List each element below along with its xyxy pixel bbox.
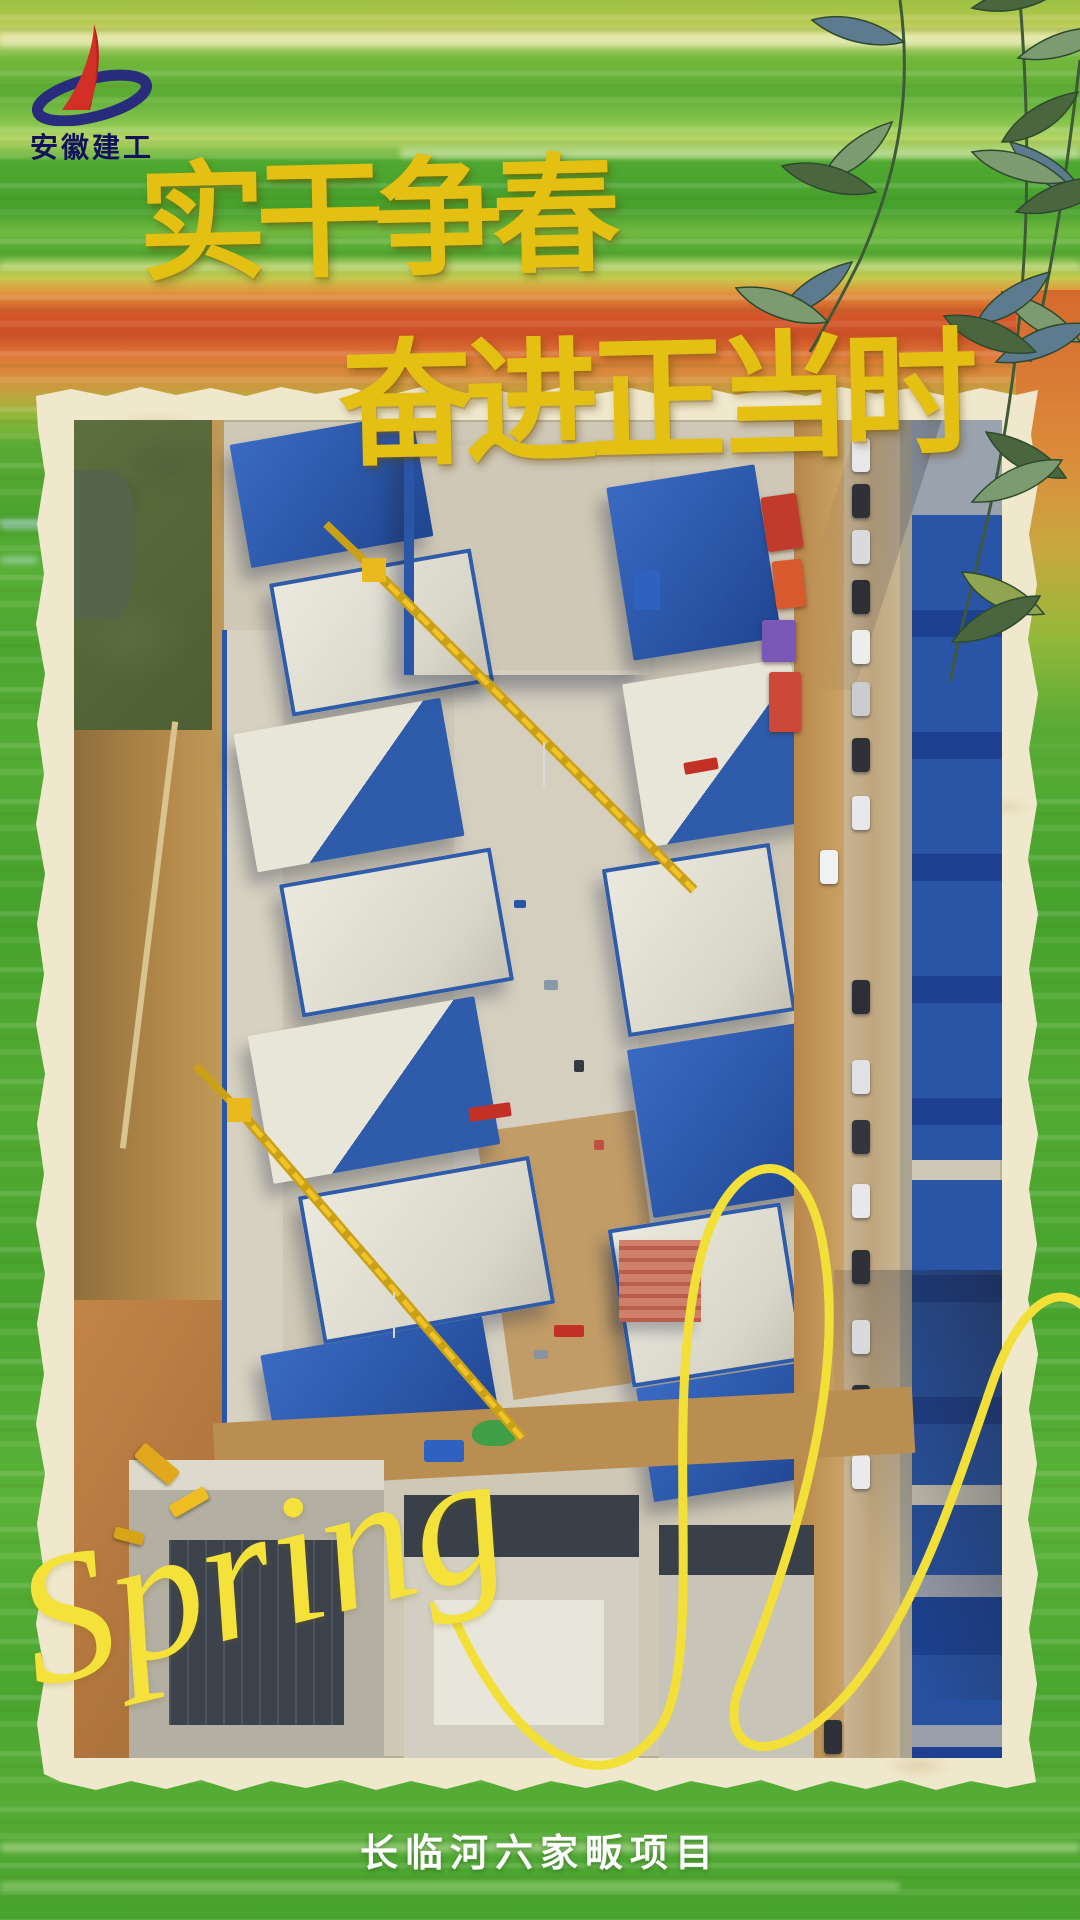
brush-streak bbox=[0, 520, 42, 529]
headline-line2: 奋进正当时 bbox=[336, 283, 970, 493]
project-caption: 长临河六家畈项目 bbox=[0, 1822, 1080, 1877]
poster-root: 安徽建工 实干争春 奋进正当时 bbox=[0, 0, 1080, 1920]
brush-streak bbox=[0, 556, 38, 564]
brush-streak bbox=[0, 1882, 900, 1890]
headline-line1: 实干争春 bbox=[136, 111, 612, 306]
anhui-jiangong-sail-logo-icon bbox=[28, 22, 158, 126]
